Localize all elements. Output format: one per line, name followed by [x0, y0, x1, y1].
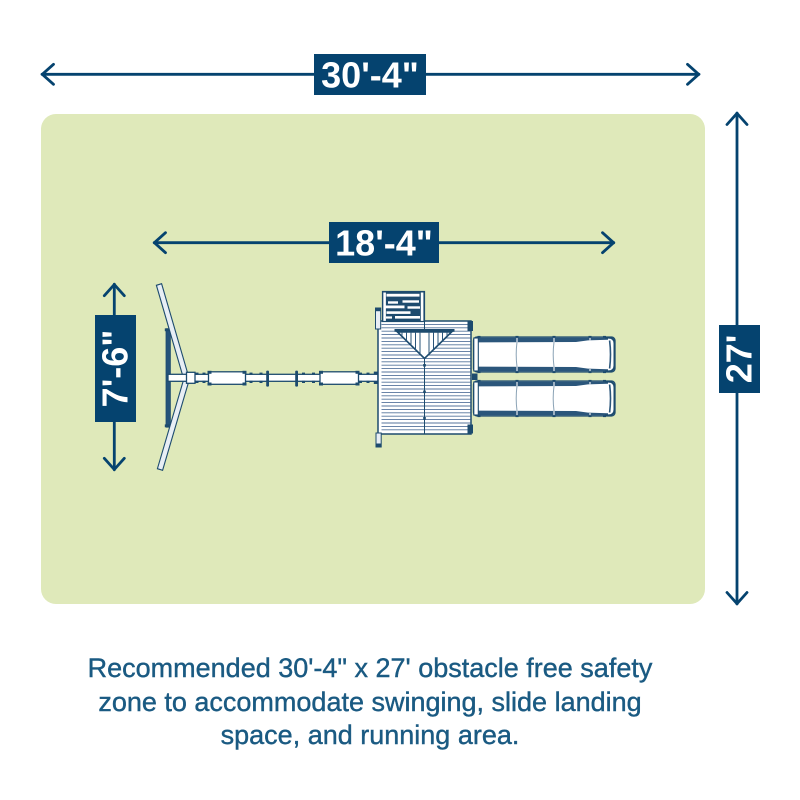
svg-text:27': 27'	[719, 335, 760, 384]
svg-text:18'-4": 18'-4"	[335, 223, 433, 264]
svg-text:7'-6": 7'-6"	[95, 330, 136, 408]
svg-text:30'-4": 30'-4"	[321, 55, 419, 96]
